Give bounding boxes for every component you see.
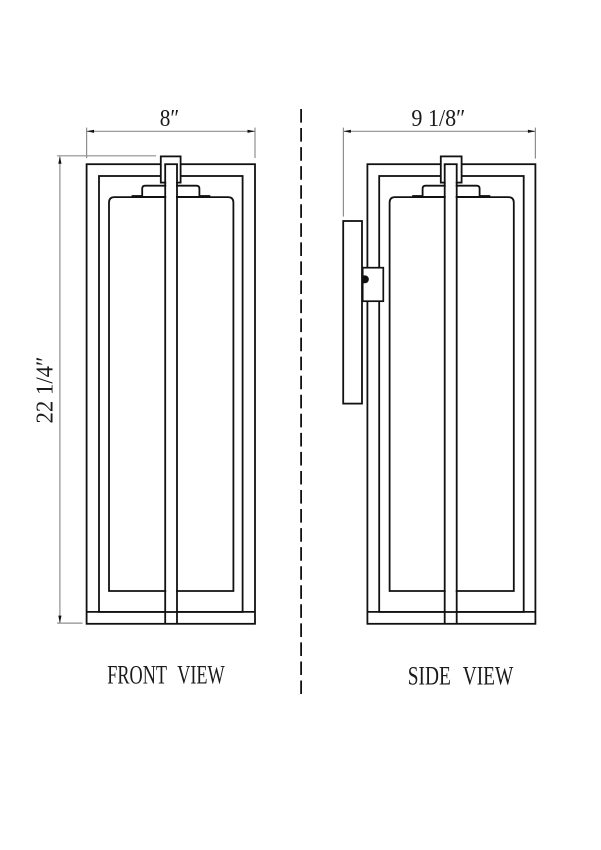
svg-text:SIDE VIEW: SIDE VIEW — [408, 661, 514, 690]
svg-text:22 1/4″: 22 1/4″ — [33, 357, 59, 424]
svg-text:9 1/8″: 9 1/8″ — [411, 106, 465, 132]
svg-text:FRONT VIEW: FRONT VIEW — [107, 661, 225, 690]
svg-text:8″: 8″ — [160, 106, 180, 132]
